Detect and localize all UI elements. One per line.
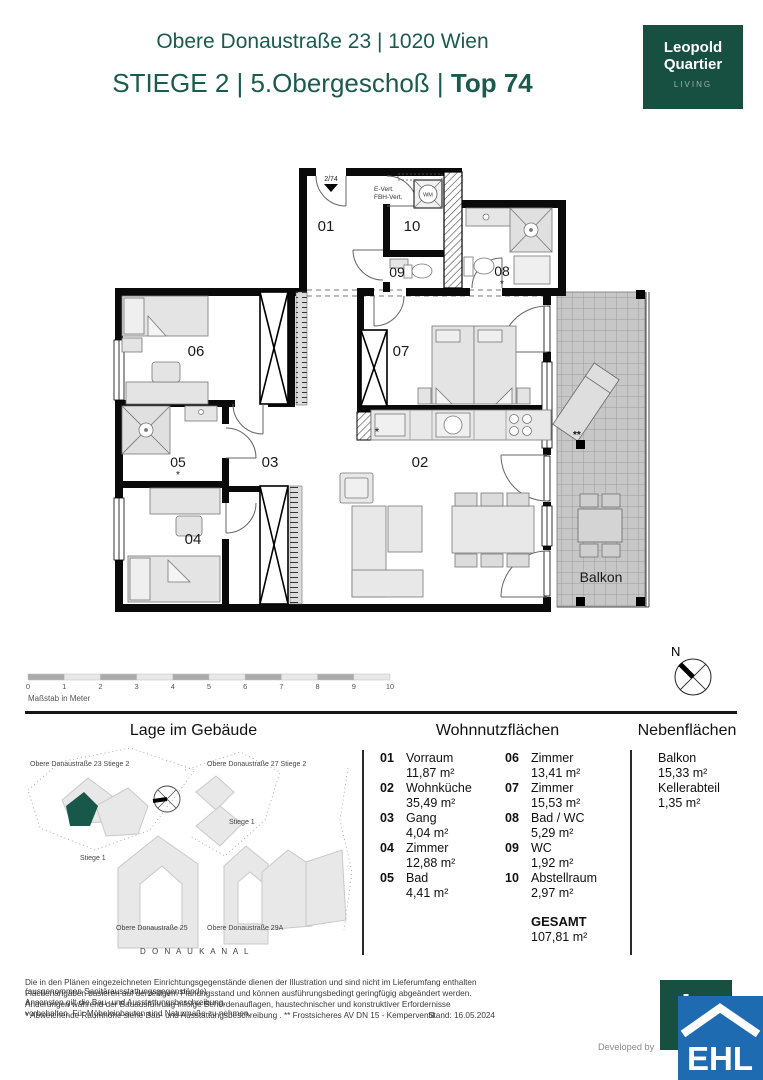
area-value: 4,04 m² bbox=[406, 826, 448, 840]
room-label-04: 04 bbox=[185, 531, 202, 548]
ehl-roof-icon bbox=[683, 1008, 758, 1034]
room-label-05: 05 bbox=[170, 454, 186, 470]
wm-label: WM bbox=[423, 193, 433, 199]
area-value: 13,41 m² bbox=[531, 766, 580, 780]
side-areas-title: Nebenflächen bbox=[633, 722, 741, 740]
kitchen-star: * bbox=[375, 425, 380, 439]
installation-shaft bbox=[444, 172, 462, 288]
entrance-arrow-icon bbox=[324, 184, 338, 192]
side-area-name: Kellerabteil bbox=[658, 781, 720, 795]
unit-text: STIEGE 2 | 5.Obergeschoß | bbox=[112, 68, 443, 98]
area-value: 35,49 m² bbox=[406, 796, 455, 810]
area-value: 5,29 m² bbox=[531, 826, 573, 840]
column-divider-2 bbox=[630, 750, 632, 955]
area-name: Wohnküche bbox=[406, 781, 472, 795]
frost-valve-marker: ** bbox=[573, 430, 581, 441]
site-plan-title: Lage im Gebäude bbox=[25, 722, 362, 740]
area-name: Abstellraum bbox=[531, 871, 597, 885]
area-name: Vorraum bbox=[406, 751, 453, 765]
hall-shelf-2 bbox=[290, 486, 302, 604]
area-num: 10 bbox=[505, 871, 519, 885]
room-label-09: 09 bbox=[389, 264, 405, 280]
room-label-03: 03 bbox=[262, 454, 279, 471]
svg-text:10: 10 bbox=[386, 682, 394, 691]
floorplan-page: Obere Donaustraße 23 | 1020 Wien STIEGE … bbox=[0, 0, 763, 1080]
area-name: Gang bbox=[406, 811, 437, 825]
kitchen-shaft bbox=[357, 412, 371, 440]
room-label-01: 01 bbox=[318, 218, 335, 235]
room-04-furniture bbox=[128, 488, 220, 602]
area-value: 1,92 m² bbox=[531, 856, 573, 870]
site-compass-icon bbox=[153, 786, 180, 812]
logo-line1: Leopold bbox=[643, 39, 743, 56]
room-label-07: 07 bbox=[393, 343, 410, 360]
scale-bar bbox=[28, 674, 390, 680]
area-value: 11,87 m² bbox=[406, 766, 454, 780]
svg-text:7: 7 bbox=[279, 682, 283, 691]
leopold-quartier-logo: Leopold Quartier LIVING bbox=[643, 25, 743, 109]
logo-line2: Quartier bbox=[643, 56, 743, 73]
svg-text:0: 0 bbox=[26, 682, 30, 691]
side-area-name: Balkon bbox=[658, 751, 696, 765]
entrance-marker: 2/74 bbox=[324, 176, 338, 192]
svg-text:9: 9 bbox=[352, 682, 356, 691]
area-name: Bad / WC bbox=[531, 811, 585, 825]
label-bldg-29a: Obere Donaustraße 29A bbox=[207, 925, 284, 932]
room-05-fixtures bbox=[122, 406, 217, 454]
building-footprints bbox=[62, 776, 346, 948]
label-donaukanal: D O N A U K A N A L bbox=[140, 947, 250, 956]
ehl-logo-text: EHL bbox=[687, 1040, 753, 1077]
floorplan-drawing: ** Balkon bbox=[110, 160, 655, 620]
room-10-fixtures: WM E-Vert. FBH-Vert. bbox=[374, 174, 442, 208]
area-num: 07 bbox=[505, 781, 519, 795]
room-label-10: 10 bbox=[404, 218, 421, 235]
label-stiege1-right: Stiege 1 bbox=[229, 819, 255, 826]
area-num: 02 bbox=[380, 781, 394, 795]
living-areas-title: Wohnnutzflächen bbox=[370, 722, 625, 740]
header-unit-line: STIEGE 2 | 5.Obergeschoß | Top 74 bbox=[0, 68, 645, 99]
area-value: 15,53 m² bbox=[531, 796, 580, 810]
logo-line3: LIVING bbox=[643, 80, 743, 89]
area-name: Bad bbox=[406, 871, 428, 885]
area-name: Zimmer bbox=[531, 781, 573, 795]
label-bldg-25: Obere Donaustraße 25 bbox=[116, 925, 188, 932]
svg-text:5: 5 bbox=[207, 682, 211, 691]
room-08-star: * bbox=[500, 279, 504, 290]
room-07-furniture bbox=[418, 326, 530, 404]
site-plan-map: Obere Donaustraße 23 Stiege 2 Obere Dona… bbox=[20, 748, 365, 960]
area-name: WC bbox=[531, 841, 552, 855]
area-num: 04 bbox=[380, 841, 394, 855]
svg-text:6: 6 bbox=[243, 682, 247, 691]
fbh-vert-label: FBH-Vert. bbox=[374, 194, 403, 201]
area-num: 09 bbox=[505, 841, 519, 855]
balcony-table bbox=[578, 509, 622, 542]
scale-ticks: 0 1 2 3 4 5 6 7 8 9 10 bbox=[26, 682, 394, 691]
area-name: Zimmer bbox=[406, 841, 448, 855]
room-label-02: 02 bbox=[412, 454, 429, 471]
compass-icon: N bbox=[671, 644, 711, 695]
entrance-label: 2/74 bbox=[324, 176, 338, 183]
svg-text:1: 1 bbox=[62, 682, 66, 691]
room-label-balkon: Balkon bbox=[580, 569, 623, 585]
scale-caption: Maßstab in Meter bbox=[28, 694, 91, 703]
area-value: 2,97 m² bbox=[531, 886, 573, 900]
svg-text:4: 4 bbox=[171, 682, 175, 691]
balcony: ** Balkon bbox=[553, 290, 649, 607]
compass-north-label: N bbox=[671, 644, 680, 659]
area-num: 06 bbox=[505, 751, 519, 765]
room-02-furniture bbox=[340, 410, 551, 597]
area-name: Zimmer bbox=[531, 751, 573, 765]
svg-text:3: 3 bbox=[135, 682, 139, 691]
scale-and-compass: 0 1 2 3 4 5 6 7 8 9 10 Maßstab in Meter … bbox=[0, 630, 763, 720]
room-05-star: * bbox=[176, 470, 180, 481]
unit-top-number: Top 74 bbox=[444, 68, 533, 98]
room-label-08: 08 bbox=[494, 263, 510, 279]
area-num: 08 bbox=[505, 811, 519, 825]
svg-text:8: 8 bbox=[316, 682, 320, 691]
section-divider bbox=[25, 711, 737, 714]
developed-by-label: Developed by bbox=[598, 1042, 654, 1052]
total-label: GESAMT bbox=[531, 914, 587, 929]
area-value: 12,88 m² bbox=[406, 856, 455, 870]
ehl-logo-graphic: EHL bbox=[678, 996, 763, 1080]
label-bldg-23: Obere Donaustraße 23 Stiege 2 bbox=[30, 761, 129, 768]
side-area-value: 1,35 m² bbox=[658, 796, 700, 810]
label-stiege1-left: Stiege 1 bbox=[80, 855, 106, 862]
hall-shelf bbox=[296, 292, 307, 405]
total-area: 107,81 m² bbox=[531, 930, 587, 944]
footer-stand-date: Stand: 16.05.2024 bbox=[25, 1011, 495, 1020]
svg-text:2: 2 bbox=[98, 682, 102, 691]
label-bldg-27: Obere Donaustraße 27 Stiege 2 bbox=[207, 761, 306, 768]
area-num: 05 bbox=[380, 871, 394, 885]
e-vert-label: E-Vert. bbox=[374, 186, 394, 193]
area-num: 01 bbox=[380, 751, 394, 765]
area-num: 03 bbox=[380, 811, 394, 825]
area-value: 4,41 m² bbox=[406, 886, 448, 900]
side-area-value: 15,33 m² bbox=[658, 766, 707, 780]
room-label-06: 06 bbox=[188, 343, 205, 360]
ehl-logo: EHL bbox=[678, 996, 763, 1080]
header-address: Obere Donaustraße 23 | 1020 Wien bbox=[0, 30, 645, 54]
